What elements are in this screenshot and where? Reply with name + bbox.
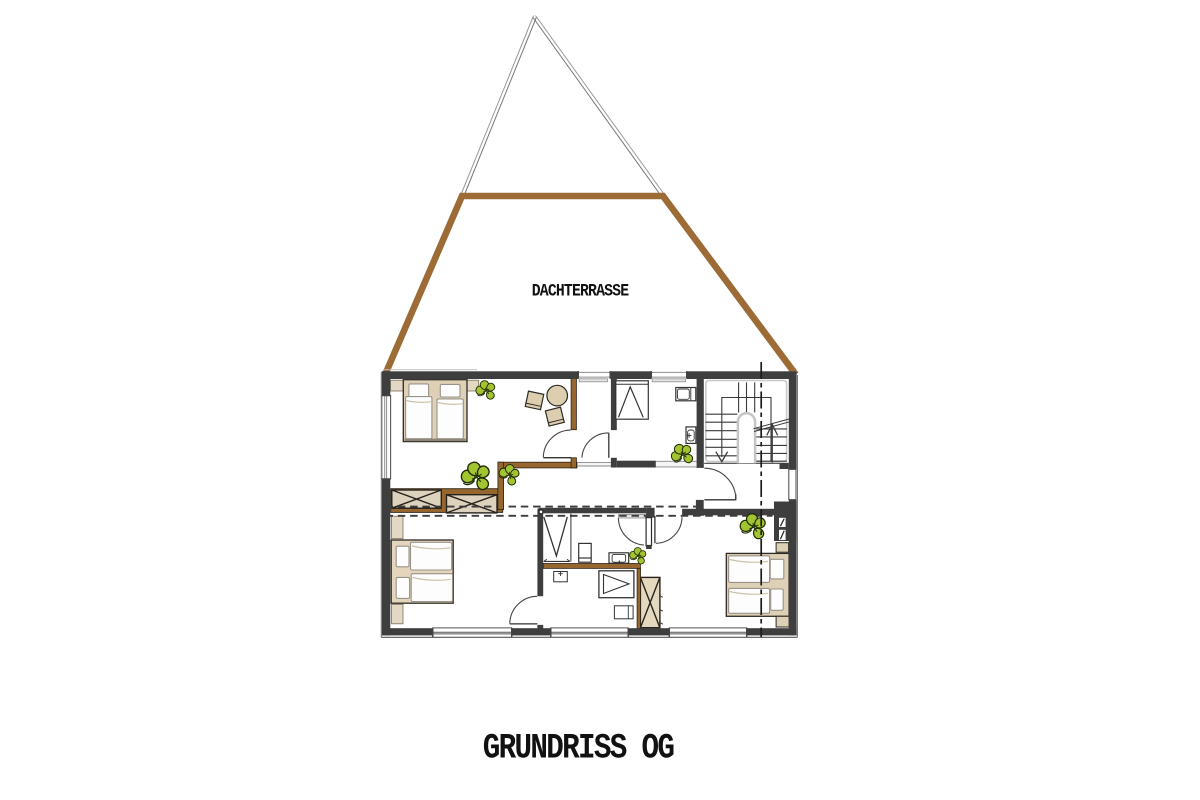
svg-text:DACHTERRASSE: DACHTERRASSE <box>532 280 629 301</box>
svg-text:GRUNDRISS OG: GRUNDRISS OG <box>483 728 674 768</box>
